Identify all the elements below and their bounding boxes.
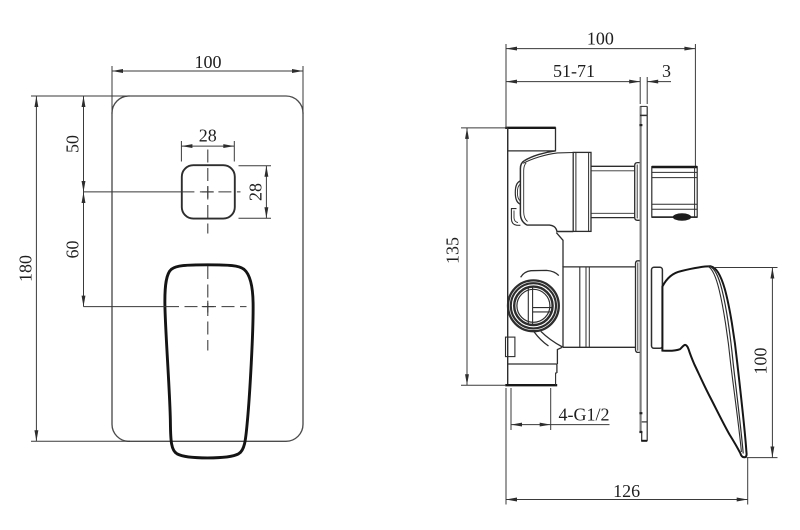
svg-text:3: 3 [662,61,671,81]
svg-text:100: 100 [751,348,771,375]
svg-text:51-71: 51-71 [553,61,595,81]
svg-text:180: 180 [16,255,36,282]
svg-text:100: 100 [587,29,614,49]
svg-text:126: 126 [613,481,640,501]
svg-text:60: 60 [63,241,83,259]
svg-text:28: 28 [246,183,266,201]
svg-text:135: 135 [443,237,463,264]
svg-text:28: 28 [199,126,217,146]
svg-text:100: 100 [195,52,222,72]
svg-text:4-G1/2: 4-G1/2 [559,405,610,425]
svg-text:50: 50 [63,135,83,153]
